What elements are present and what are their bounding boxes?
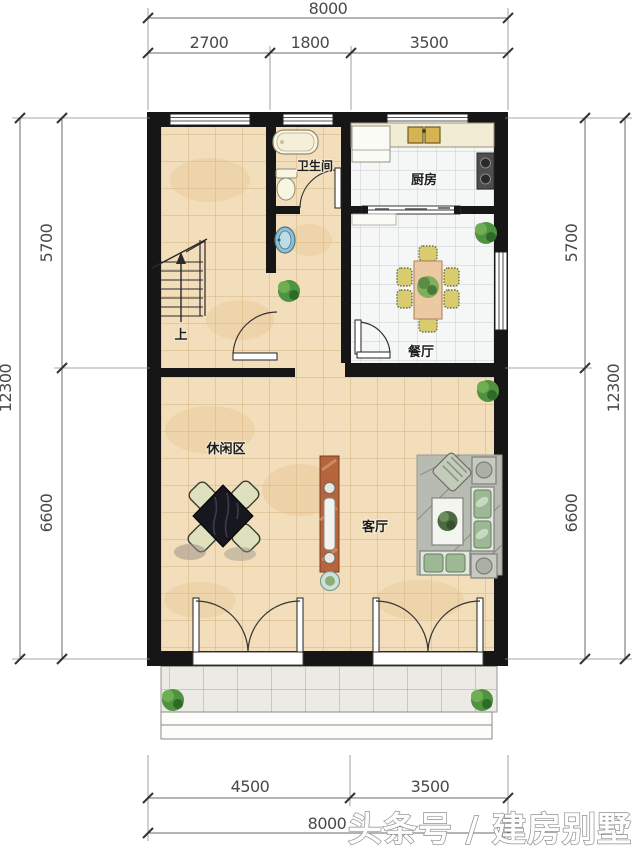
dim-right-seg-1: 5700 [562, 223, 581, 262]
plant-porch-right [471, 689, 493, 711]
kitchen-label: 厨房 [411, 172, 437, 188]
floor-plan-drawing: 卫生间 厨房 餐厅 休闲区 客厅 上 [0, 0, 640, 847]
tv-shelf-item-top [324, 483, 335, 494]
dim-top-seg-1: 2700 [190, 33, 229, 52]
dim-bottom-seg-2: 3500 [411, 777, 450, 796]
kitchen-cabinet [352, 126, 390, 162]
kitchen-pass-through-window [362, 206, 460, 214]
porch-step-1 [161, 712, 492, 725]
coffee-table [432, 498, 463, 545]
dim-left-seg-2: 6600 [37, 493, 56, 532]
sofa-set [417, 451, 502, 578]
dining-label: 餐厅 [407, 344, 434, 360]
sofa-bottom [420, 551, 470, 575]
dining-side-cabinet [352, 214, 396, 225]
stairs-up-label: 上 [174, 328, 187, 343]
toilet [276, 169, 297, 200]
plant-living [477, 380, 499, 402]
tv-shelf-item-bottom [324, 553, 335, 564]
dim-left-seg-1: 5700 [37, 223, 56, 262]
porch-step-2 [161, 725, 492, 739]
wall-kitchen-divider-left [351, 206, 362, 214]
tv-cabinet [320, 456, 340, 591]
window-top-left [170, 114, 250, 125]
dim-top-total: 8000 [309, 0, 348, 18]
wall-dining-bottom [345, 363, 494, 377]
floor-plan-page: 卫生间 厨房 餐厅 休闲区 客厅 上 [0, 0, 640, 847]
window-right-dining [495, 252, 507, 330]
dim-left-total: 12300 [0, 363, 15, 412]
window-top-bathroom [283, 114, 333, 125]
wall-bath-bottom [266, 206, 300, 214]
plant-dining [475, 222, 497, 244]
dim-bottom-total: 8000 [308, 814, 347, 833]
bathroom-label: 卫生间 [297, 158, 333, 173]
dim-bottom-seg-1: 4500 [231, 777, 270, 796]
stove [477, 153, 494, 189]
wall-hall-living [161, 368, 295, 377]
watermark-text: 头条号 / 建房别墅 [348, 810, 632, 847]
plant-porch-left [162, 689, 184, 711]
bathtub [273, 130, 318, 154]
wall-kitchen-divider-right [460, 206, 494, 214]
wall-left [147, 112, 161, 666]
leisure-label: 休闲区 [205, 441, 245, 457]
tv-screen [324, 498, 335, 550]
sofa-right [471, 487, 494, 551]
dim-top-seg-2: 1800 [291, 33, 330, 52]
floor-vase [321, 572, 340, 591]
wall-bath-kitchen [341, 127, 351, 363]
porch-floor [161, 666, 497, 712]
dining-table-plant [417, 276, 439, 298]
dim-right-total: 12300 [604, 363, 623, 412]
wash-basin [275, 227, 295, 253]
dim-right-seg-2: 6600 [562, 493, 581, 532]
living-label: 客厅 [362, 519, 388, 535]
plant-corridor [278, 280, 300, 302]
porch [161, 666, 497, 739]
dim-top-seg-3: 3500 [410, 33, 449, 52]
